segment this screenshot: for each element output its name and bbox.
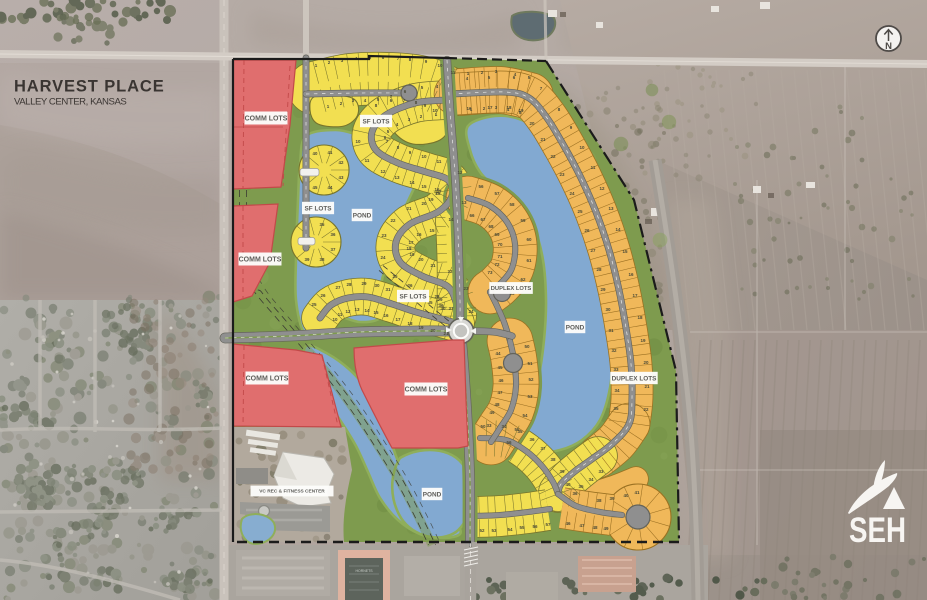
svg-text:10: 10	[421, 154, 427, 159]
svg-text:11: 11	[437, 159, 442, 164]
svg-text:38: 38	[550, 457, 556, 462]
svg-text:31: 31	[608, 328, 614, 333]
svg-text:56: 56	[506, 440, 512, 445]
svg-text:16: 16	[416, 232, 422, 237]
svg-text:15: 15	[429, 228, 435, 233]
svg-text:22: 22	[550, 154, 556, 159]
svg-text:32: 32	[611, 348, 617, 353]
svg-text:10: 10	[332, 317, 338, 322]
svg-text:19: 19	[518, 108, 524, 113]
svg-text:38: 38	[320, 257, 325, 262]
svg-text:18: 18	[637, 315, 643, 320]
svg-text:67: 67	[480, 217, 486, 222]
svg-text:11: 11	[338, 312, 343, 317]
svg-text:17: 17	[395, 317, 401, 322]
svg-text:12: 12	[599, 186, 605, 191]
svg-text:28: 28	[596, 267, 602, 272]
svg-text:24: 24	[468, 309, 474, 314]
svg-text:29: 29	[437, 297, 443, 302]
svg-text:38: 38	[596, 498, 602, 503]
svg-text:50: 50	[524, 344, 530, 349]
svg-text:51: 51	[527, 361, 533, 366]
svg-text:14: 14	[364, 308, 370, 313]
svg-text:46: 46	[498, 378, 504, 383]
svg-text:21: 21	[443, 331, 449, 336]
svg-text:COMM LOTS: COMM LOTS	[405, 387, 448, 394]
svg-text:14: 14	[615, 227, 621, 232]
svg-text:60: 60	[526, 237, 532, 242]
svg-text:23: 23	[463, 286, 469, 291]
svg-text:16: 16	[628, 272, 634, 277]
svg-text:13: 13	[608, 206, 614, 211]
svg-text:18: 18	[435, 191, 441, 196]
svg-text:15: 15	[622, 249, 628, 254]
svg-text:HORNETS: HORNETS	[355, 569, 373, 573]
svg-text:33: 33	[598, 469, 604, 474]
svg-text:21: 21	[406, 206, 412, 211]
svg-text:24: 24	[569, 191, 575, 196]
svg-text:39: 39	[559, 469, 565, 474]
svg-text:34: 34	[588, 477, 594, 482]
svg-text:33: 33	[613, 367, 619, 372]
svg-text:29: 29	[361, 281, 367, 286]
svg-text:40: 40	[565, 482, 571, 487]
svg-text:45: 45	[313, 185, 318, 190]
svg-text:25: 25	[577, 209, 583, 214]
svg-text:SF LOTS: SF LOTS	[400, 293, 428, 300]
svg-text:25: 25	[392, 274, 398, 279]
svg-text:30: 30	[374, 283, 380, 288]
svg-text:61: 61	[526, 258, 532, 263]
svg-text:13: 13	[394, 175, 400, 180]
svg-text:44: 44	[328, 185, 333, 190]
svg-text:22: 22	[643, 407, 649, 412]
svg-text:39: 39	[305, 257, 310, 262]
svg-text:SF LOTS: SF LOTS	[363, 118, 391, 125]
svg-text:43: 43	[339, 175, 344, 180]
svg-text:23: 23	[559, 172, 565, 177]
svg-text:48: 48	[494, 402, 500, 407]
svg-text:19: 19	[409, 252, 415, 257]
svg-text:21: 21	[540, 137, 546, 142]
svg-text:N: N	[885, 41, 892, 52]
svg-text:49: 49	[603, 526, 609, 531]
svg-text:53: 53	[491, 528, 497, 533]
svg-text:18: 18	[506, 105, 512, 110]
svg-text:16: 16	[383, 313, 389, 318]
svg-text:24: 24	[380, 255, 386, 260]
svg-text:46: 46	[565, 521, 571, 526]
svg-text:26: 26	[584, 228, 590, 233]
svg-text:11: 11	[451, 70, 456, 75]
svg-text:34: 34	[501, 424, 507, 429]
svg-text:57: 57	[545, 522, 551, 527]
svg-text:54: 54	[522, 413, 528, 418]
svg-text:20: 20	[418, 257, 424, 262]
svg-text:37: 37	[331, 247, 336, 252]
svg-text:19: 19	[640, 338, 646, 343]
svg-text:11: 11	[591, 165, 596, 170]
svg-text:55: 55	[514, 427, 520, 432]
svg-text:11: 11	[365, 158, 370, 163]
svg-text:13: 13	[354, 307, 360, 312]
svg-text:36: 36	[331, 232, 336, 237]
svg-text:20: 20	[430, 328, 436, 333]
svg-text:COMM LOTS: COMM LOTS	[245, 116, 288, 123]
svg-text:34: 34	[614, 388, 620, 393]
svg-text:COMM LOTS: COMM LOTS	[246, 376, 289, 383]
svg-text:54: 54	[507, 527, 513, 532]
svg-text:42: 42	[339, 160, 344, 165]
svg-text:35: 35	[613, 406, 619, 411]
svg-text:66: 66	[469, 213, 475, 218]
svg-text:69: 69	[494, 232, 500, 237]
svg-text:19: 19	[428, 197, 434, 202]
svg-text:53: 53	[527, 394, 533, 399]
svg-text:37: 37	[448, 306, 454, 311]
svg-text:28: 28	[346, 282, 352, 287]
svg-text:26: 26	[320, 293, 326, 298]
svg-text:HARVEST PLACE: HARVEST PLACE	[14, 78, 164, 96]
svg-text:12: 12	[380, 169, 386, 174]
svg-text:10: 10	[355, 139, 361, 144]
svg-text:49: 49	[489, 410, 495, 415]
svg-text:20: 20	[421, 201, 427, 206]
svg-text:37: 37	[540, 446, 546, 451]
svg-text:47: 47	[579, 523, 585, 528]
svg-text:POND: POND	[566, 324, 585, 331]
svg-text:27: 27	[590, 248, 596, 253]
svg-text:VALLEY CENTER, KANSAS: VALLEY CENTER, KANSAS	[14, 97, 127, 108]
svg-text:33: 33	[486, 423, 492, 428]
svg-text:20: 20	[643, 360, 649, 365]
svg-text:30: 30	[605, 307, 611, 312]
svg-text:40: 40	[623, 493, 629, 498]
svg-text:15: 15	[373, 310, 379, 315]
svg-text:POND: POND	[353, 212, 372, 219]
svg-text:19: 19	[418, 325, 424, 330]
svg-text:25: 25	[311, 302, 317, 307]
svg-text:59: 59	[520, 218, 526, 223]
svg-text:VC REC & FITNESS CENTER: VC REC & FITNESS CENTER	[259, 489, 325, 495]
svg-text:26: 26	[407, 283, 413, 288]
svg-text:35: 35	[578, 484, 584, 489]
svg-text:21: 21	[430, 263, 436, 268]
svg-text:27: 27	[335, 285, 341, 290]
svg-text:16: 16	[466, 106, 472, 111]
svg-text:18: 18	[406, 246, 412, 251]
svg-text:50: 50	[480, 424, 486, 429]
svg-text:29: 29	[600, 287, 606, 292]
svg-text:48: 48	[592, 525, 598, 530]
svg-text:POND: POND	[423, 491, 442, 498]
svg-text:15: 15	[421, 184, 427, 189]
svg-text:45: 45	[497, 365, 503, 370]
svg-text:14: 14	[448, 217, 454, 222]
svg-text:17: 17	[487, 105, 493, 110]
svg-text:COMM LOTS: COMM LOTS	[239, 257, 282, 264]
svg-text:36: 36	[438, 303, 444, 308]
svg-text:44: 44	[495, 351, 501, 356]
svg-text:58: 58	[509, 202, 515, 207]
svg-text:13: 13	[461, 200, 467, 205]
svg-text:71: 71	[497, 254, 503, 259]
svg-text:12: 12	[457, 170, 463, 175]
svg-text:22: 22	[447, 269, 453, 274]
svg-text:52: 52	[528, 377, 534, 382]
svg-text:57: 57	[494, 191, 500, 196]
svg-text:36: 36	[529, 437, 535, 442]
svg-text:18: 18	[407, 321, 413, 326]
svg-text:SF LOTS: SF LOTS	[305, 205, 333, 212]
svg-text:62: 62	[520, 277, 526, 282]
svg-text:73: 73	[487, 270, 493, 275]
svg-text:10: 10	[437, 63, 443, 68]
svg-text:68: 68	[488, 224, 494, 229]
svg-text:41: 41	[328, 150, 333, 155]
svg-text:55: 55	[519, 525, 525, 530]
svg-text:31: 31	[385, 287, 391, 292]
svg-text:12: 12	[345, 309, 351, 314]
svg-text:20: 20	[529, 121, 535, 126]
svg-text:70: 70	[497, 242, 503, 247]
svg-text:56: 56	[532, 524, 538, 529]
svg-text:17: 17	[408, 240, 414, 245]
svg-text:35: 35	[320, 222, 325, 227]
svg-text:41: 41	[634, 490, 640, 495]
svg-text:52: 52	[479, 528, 485, 533]
svg-text:56: 56	[478, 184, 484, 189]
svg-text:21: 21	[644, 384, 650, 389]
svg-text:72: 72	[494, 262, 500, 267]
svg-text:22: 22	[390, 218, 396, 223]
svg-text:23: 23	[381, 233, 387, 238]
svg-text:17: 17	[632, 293, 638, 298]
svg-text:39: 39	[609, 496, 615, 501]
svg-text:SEH: SEH	[849, 510, 906, 550]
svg-text:DUPLEX LOTS: DUPLEX LOTS	[612, 375, 657, 382]
svg-text:DUPLEX LOTS: DUPLEX LOTS	[491, 286, 532, 292]
svg-text:36: 36	[572, 491, 578, 496]
svg-text:10: 10	[579, 145, 585, 150]
svg-text:14: 14	[409, 180, 415, 185]
svg-text:40: 40	[313, 151, 318, 156]
svg-text:47: 47	[497, 390, 503, 395]
